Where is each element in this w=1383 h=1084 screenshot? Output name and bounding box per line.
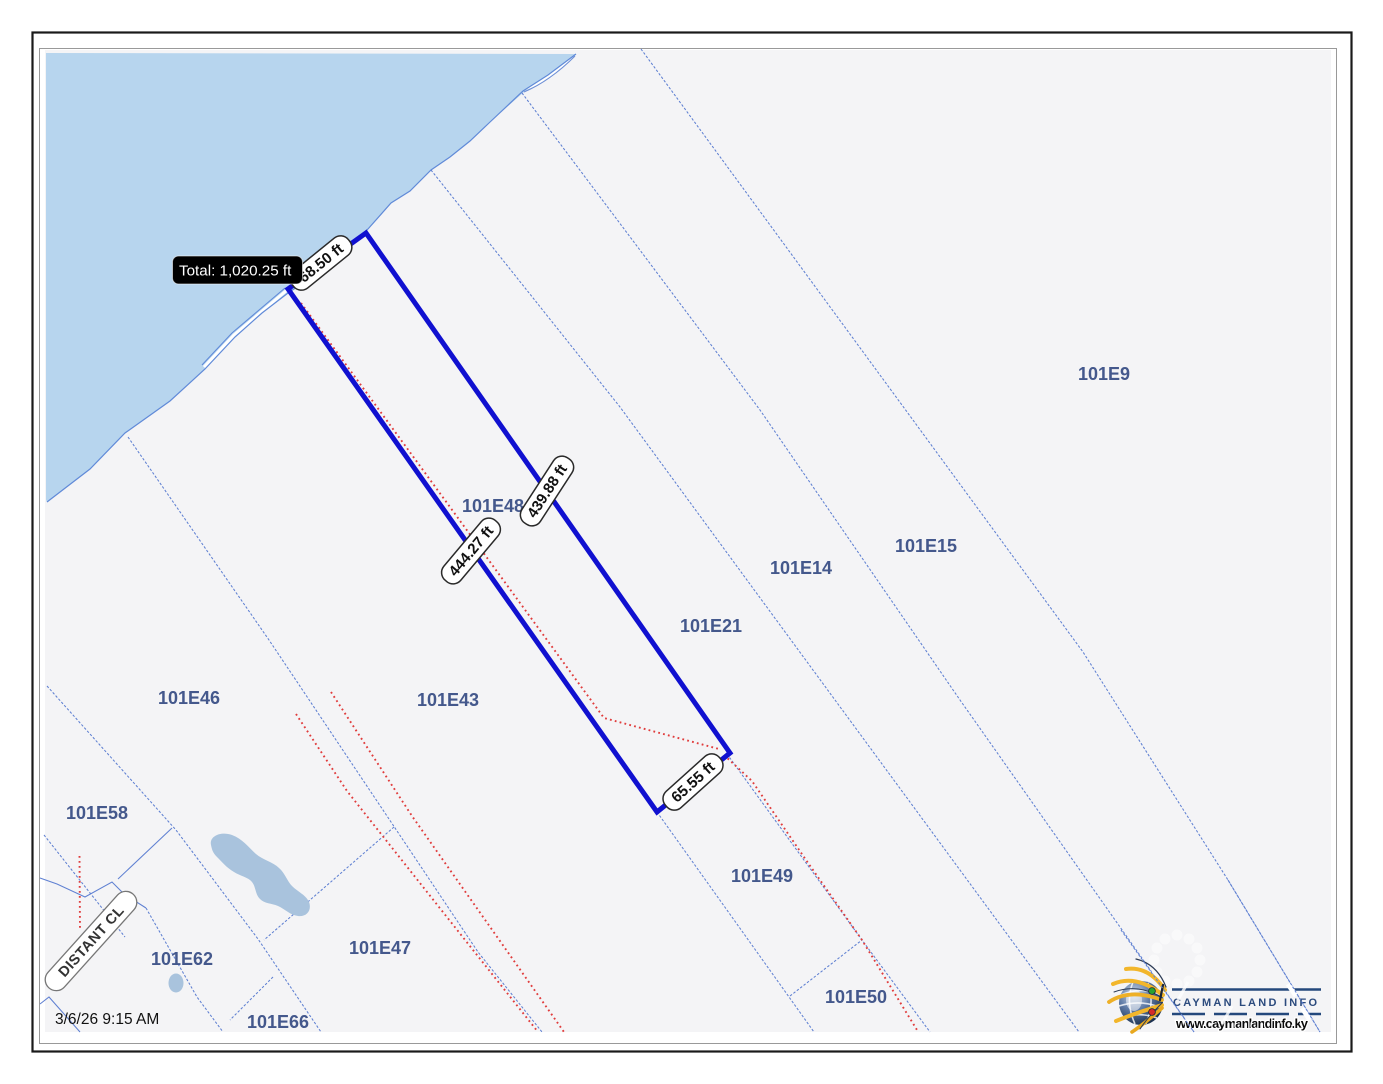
svg-text:101E46: 101E46 xyxy=(158,688,220,708)
svg-text:101E50: 101E50 xyxy=(825,987,887,1007)
svg-text:CAYMAN LAND INFO: CAYMAN LAND INFO xyxy=(1173,997,1319,1009)
svg-text:3/6/26 9:15 AM: 3/6/26 9:15 AM xyxy=(55,1011,159,1028)
svg-text:101E9: 101E9 xyxy=(1078,364,1130,384)
svg-text:101E66: 101E66 xyxy=(247,1012,309,1032)
svg-text:101E43: 101E43 xyxy=(417,690,479,710)
svg-text:Total: 1,020.25 ft: Total: 1,020.25 ft xyxy=(179,263,292,280)
svg-text:101E21: 101E21 xyxy=(680,616,742,636)
svg-text:101E48: 101E48 xyxy=(462,496,524,516)
svg-text:101E62: 101E62 xyxy=(151,949,213,969)
svg-text:101E49: 101E49 xyxy=(731,866,793,886)
svg-text:101E15: 101E15 xyxy=(895,536,957,556)
svg-text:101E47: 101E47 xyxy=(349,938,411,958)
svg-text:101E58: 101E58 xyxy=(66,803,128,823)
svg-text:101E14: 101E14 xyxy=(770,558,832,578)
svg-text:www.caymanlandinfo.ky: www.caymanlandinfo.ky xyxy=(1175,1016,1309,1031)
